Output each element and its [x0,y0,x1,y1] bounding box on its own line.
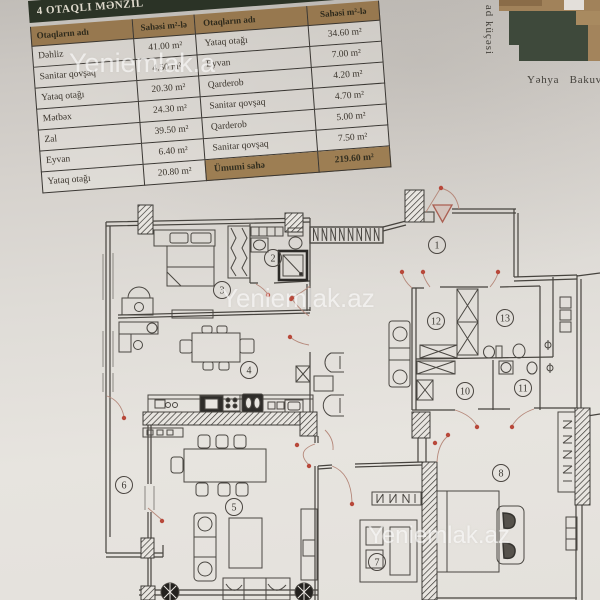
svg-text:5: 5 [232,503,237,514]
svg-text:4: 4 [247,366,252,377]
svg-text:1: 1 [435,241,440,252]
svg-text:8: 8 [499,469,504,480]
svg-text:12: 12 [431,317,441,328]
svg-text:2: 2 [271,254,276,265]
svg-text:10: 10 [460,387,470,398]
svg-text:13: 13 [500,314,510,325]
svg-text:11: 11 [518,384,528,395]
svg-text:7: 7 [375,558,380,569]
svg-text:6: 6 [122,481,127,492]
